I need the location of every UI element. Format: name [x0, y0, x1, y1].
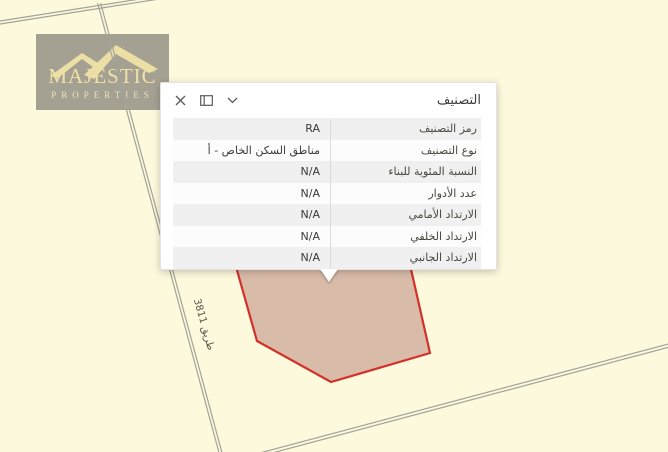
- table-row: N/A الارتداد الأمامي: [173, 204, 481, 226]
- row-value: RA: [173, 118, 330, 140]
- table-row: N/A النسبة المئوية للبناء: [173, 161, 481, 183]
- close-icon: [175, 95, 186, 106]
- row-value: N/A: [173, 226, 330, 248]
- chevron-down-icon: [227, 97, 238, 104]
- row-label: النسبة المئوية للبناء: [330, 161, 481, 183]
- road-topleft-line: [0, 0, 158, 25]
- row-label: الارتداد الجانبي: [330, 247, 481, 269]
- classification-table: RA رمز التصنيف مناطق السكن الخاص - أ نوع…: [173, 118, 481, 269]
- dock-panel-icon: [200, 95, 213, 106]
- table-row: RA رمز التصنيف: [173, 118, 481, 140]
- table-row: N/A عدد الأدوار: [173, 183, 481, 205]
- row-label: عدد الأدوار: [330, 183, 481, 205]
- table-row: N/A الارتداد الخلفي: [173, 226, 481, 248]
- row-label: نوع التصنيف: [330, 140, 481, 162]
- table-row: مناطق السكن الخاص - أ نوع التصنيف: [173, 140, 481, 162]
- row-value: N/A: [173, 183, 330, 205]
- table-row: N/A الارتداد الجانبي: [173, 247, 481, 269]
- popup-title: التصنيف: [239, 93, 481, 108]
- row-value: N/A: [173, 247, 330, 269]
- row-value: مناطق السكن الخاص - أ: [173, 140, 330, 162]
- road-bottomright-line: [256, 342, 668, 452]
- dock-panel-button[interactable]: [199, 93, 213, 107]
- popup-header: التصنيف: [161, 83, 496, 115]
- collapse-button[interactable]: [225, 93, 239, 107]
- row-label: الارتداد الأمامي: [330, 204, 481, 226]
- map-canvas[interactable]: MAJESTIC PROPERTIES طريق 3811: [0, 0, 668, 452]
- popup-pointer: [320, 269, 338, 282]
- row-value: N/A: [173, 161, 330, 183]
- close-button[interactable]: [173, 93, 187, 107]
- classification-popup: التصنيف RA رمز التصنيف مناطق السكن الخاص…: [160, 82, 497, 270]
- row-value: N/A: [173, 204, 330, 226]
- row-label: رمز التصنيف: [330, 118, 481, 140]
- row-label: الارتداد الخلفي: [330, 226, 481, 248]
